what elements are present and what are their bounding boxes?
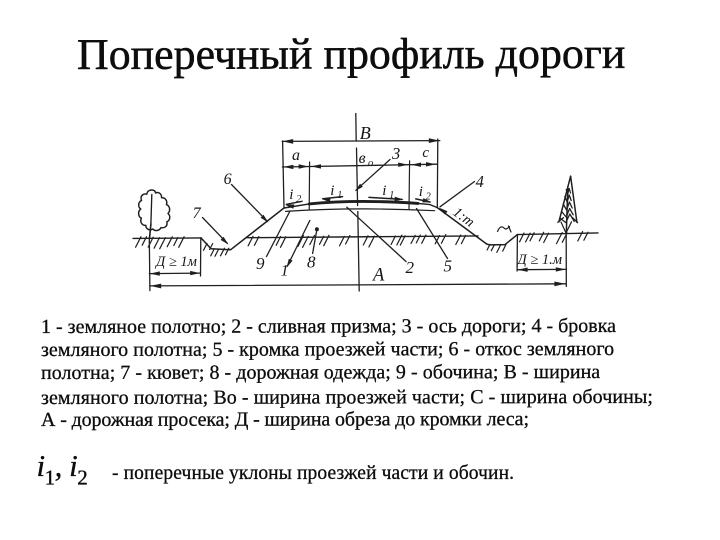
svg-text:8: 8 — [307, 252, 316, 271]
svg-text:5: 5 — [444, 256, 453, 275]
svg-text:i: i — [330, 183, 334, 199]
svg-text:7: 7 — [193, 205, 202, 222]
svg-text:6: 6 — [224, 171, 232, 188]
svg-text:Д ≥ 1.м: Д ≥ 1.м — [516, 252, 563, 268]
svg-text:1:m: 1:m — [450, 204, 478, 230]
svg-text:в: в — [359, 150, 366, 167]
svg-text:i: i — [289, 187, 293, 203]
svg-text:3: 3 — [391, 144, 400, 163]
svg-text:а: а — [292, 147, 300, 164]
svg-text:2: 2 — [426, 191, 431, 202]
svg-text:4: 4 — [476, 172, 484, 191]
svg-text:В: В — [360, 123, 371, 143]
svg-text:9: 9 — [256, 254, 265, 273]
svg-text:i: i — [382, 183, 386, 199]
svg-text:2: 2 — [296, 194, 301, 205]
svg-text:2: 2 — [406, 258, 415, 277]
svg-text:i: i — [419, 184, 423, 200]
svg-text:Д ≥ 1м: Д ≥ 1м — [154, 254, 197, 270]
svg-text:1: 1 — [337, 190, 342, 201]
svg-text:с: с — [422, 145, 429, 161]
svg-text:А: А — [371, 266, 385, 286]
svg-text:1: 1 — [281, 263, 289, 280]
svg-text:1: 1 — [389, 190, 394, 201]
svg-text:о: о — [368, 158, 373, 169]
